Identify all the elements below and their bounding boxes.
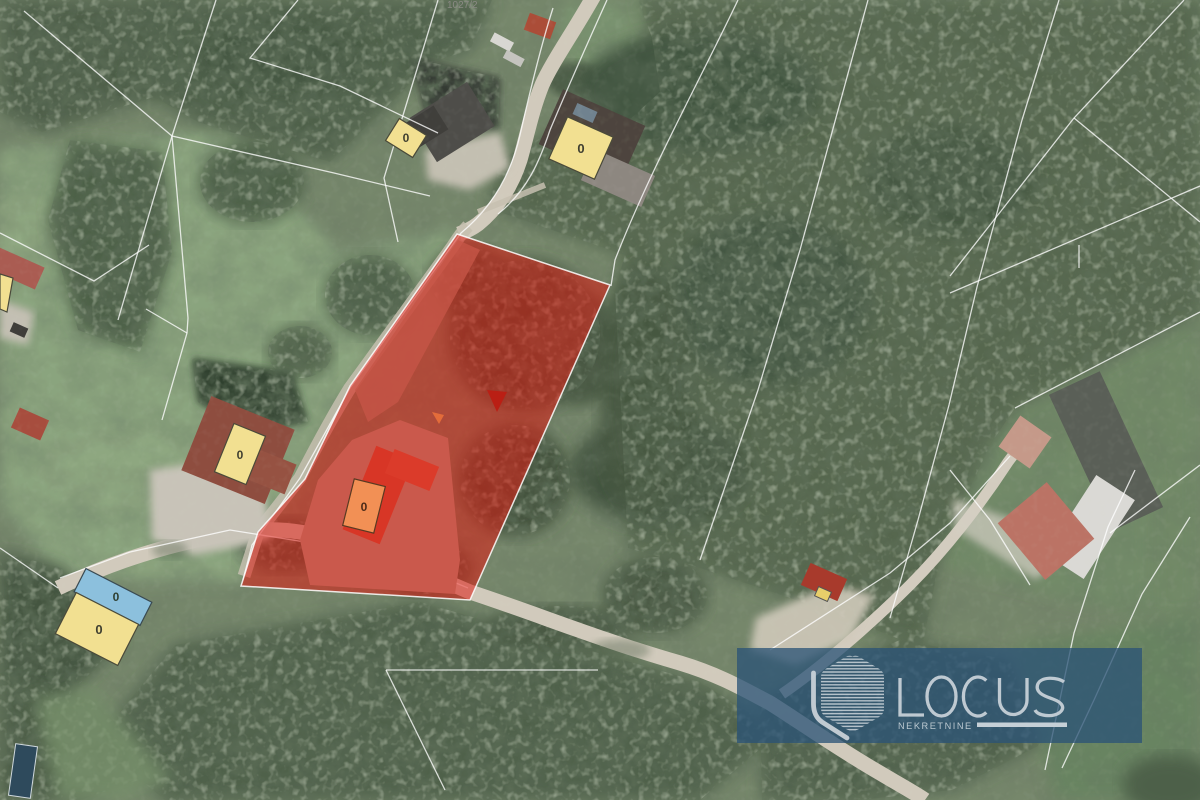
svg-text:0: 0 (95, 622, 102, 637)
svg-text:0: 0 (361, 500, 368, 514)
svg-text:0: 0 (113, 590, 120, 604)
svg-text:0: 0 (577, 141, 584, 156)
svg-text:1027/2: 1027/2 (447, 0, 478, 11)
svg-text:0: 0 (403, 131, 410, 145)
svg-text:NEKRETNINE: NEKRETNINE (898, 721, 973, 731)
svg-text:0: 0 (237, 448, 244, 462)
